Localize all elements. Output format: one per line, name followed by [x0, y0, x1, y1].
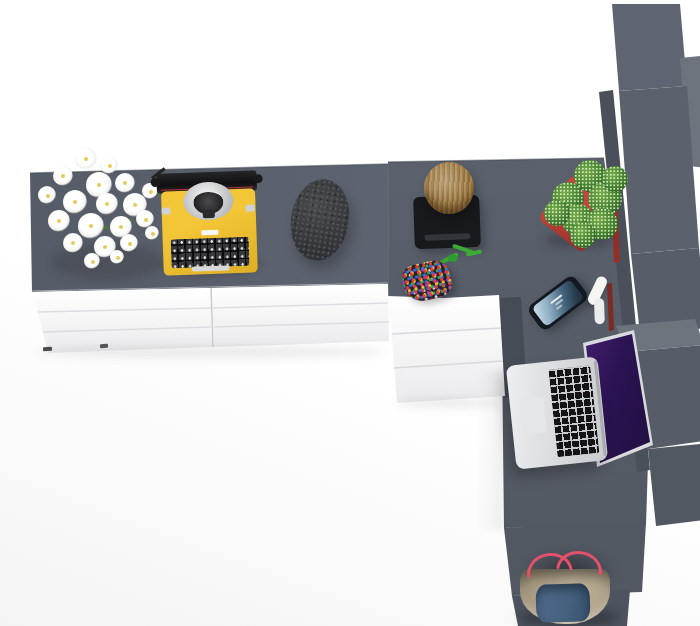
cactus — [540, 152, 620, 244]
floor-shadow — [478, 370, 504, 530]
earphone-part — [594, 298, 605, 324]
scene — [0, 0, 700, 626]
daisy — [78, 213, 104, 239]
brand-label — [201, 230, 218, 236]
daisy — [84, 253, 100, 269]
daisy — [48, 210, 70, 232]
sideboard-drawer-right — [211, 284, 389, 347]
daisy — [63, 233, 83, 253]
daisy — [75, 148, 97, 170]
log-stool-top — [424, 162, 474, 214]
margin-lever — [245, 204, 254, 211]
stool-base-slot — [424, 233, 470, 241]
bag-denim-panel — [535, 583, 590, 623]
daisy — [110, 250, 124, 264]
laptop-keyboard — [548, 365, 599, 457]
margin-lever — [162, 207, 171, 214]
typewriter — [154, 164, 266, 276]
type-guide — [203, 210, 215, 218]
typewriter-keyboard — [171, 237, 250, 269]
floor-shadow — [36, 346, 386, 358]
shelf-step-2 — [648, 444, 700, 526]
cord-knot — [448, 254, 458, 262]
daisy — [100, 156, 118, 174]
carriage-knob — [253, 174, 262, 183]
laptop-trackpad — [519, 396, 547, 434]
daisy — [63, 190, 87, 214]
daisy — [115, 173, 135, 193]
laptop-body — [506, 356, 608, 469]
lockscreen-text — [556, 304, 562, 309]
daisy — [38, 186, 56, 204]
daisy — [53, 166, 73, 186]
daisy — [96, 193, 118, 215]
column-top-face — [612, 4, 687, 91]
column-mid-face — [619, 86, 699, 254]
daisy — [120, 234, 138, 252]
sideboard-drawer-left — [33, 288, 212, 353]
